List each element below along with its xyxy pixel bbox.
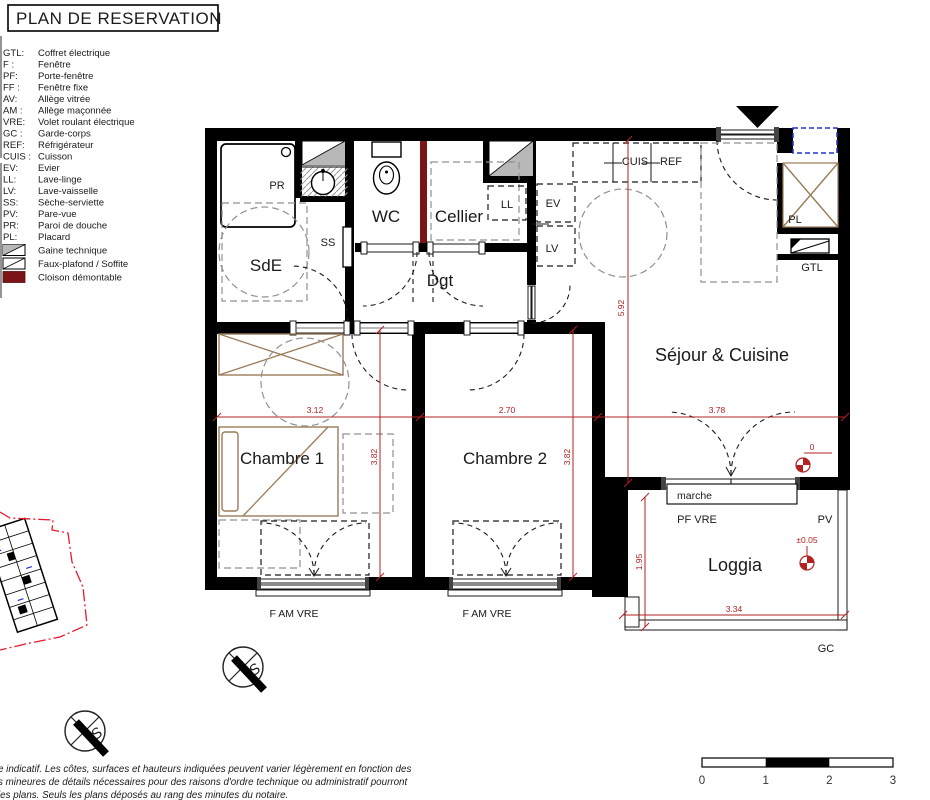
wardrobe bbox=[219, 334, 343, 375]
shower-drain bbox=[282, 148, 291, 157]
label-gc: GC bbox=[818, 643, 835, 655]
legend-abbr: AM : bbox=[3, 106, 23, 117]
label-cuis: CUIS bbox=[622, 156, 648, 168]
legend-label: Fenêtre bbox=[38, 60, 71, 71]
furniture-outline bbox=[219, 520, 300, 568]
legend-abbr: VRE: bbox=[3, 117, 25, 128]
wall-segment bbox=[592, 477, 628, 597]
scale-tick-2: 2 bbox=[826, 775, 832, 787]
legend-abbr: PV: bbox=[3, 209, 18, 220]
legend-label: Cloison démontable bbox=[38, 273, 122, 284]
faux-plafond-outline bbox=[701, 143, 777, 282]
scale-tick-0: 0 bbox=[699, 775, 705, 787]
door-hinge bbox=[716, 127, 721, 142]
label-ref: REF bbox=[660, 156, 682, 168]
scale-tick-3: 3 bbox=[890, 775, 896, 787]
door-hinge bbox=[774, 127, 779, 142]
legend-label: Sèche-serviette bbox=[38, 198, 104, 209]
room-label-chambre1: Chambre 1 bbox=[240, 449, 324, 468]
label-pl: PL bbox=[788, 214, 801, 226]
loggia-parapet-right bbox=[838, 490, 847, 630]
legend-label: Allège vitrée bbox=[38, 94, 90, 105]
legend-label: Réfrigérateur bbox=[38, 140, 93, 151]
towel-radiator bbox=[343, 227, 352, 267]
dim-loggia-width: 3.34 bbox=[726, 604, 743, 614]
compass-2: S bbox=[65, 711, 106, 754]
scale-bar: 0 1 2 3 bbox=[699, 758, 896, 787]
wall-segment bbox=[777, 254, 838, 260]
wall-segment bbox=[483, 176, 533, 183]
legend-label: Evier bbox=[38, 163, 60, 174]
dim-ch1-depth: 3.82 bbox=[369, 448, 379, 465]
label-f-am-vre-2: F AM VRE bbox=[462, 608, 511, 620]
label-lv: LV bbox=[546, 243, 559, 255]
disclaimer-line-1: e indicatif. Les côtes, surfaces et haut… bbox=[0, 764, 411, 775]
legend-abbr: EV: bbox=[3, 163, 18, 174]
level-zero-label: 0 bbox=[810, 442, 815, 452]
label-pr: PR bbox=[269, 180, 284, 192]
level-loggia-label: ±0.05 bbox=[796, 535, 817, 545]
wall-segment bbox=[777, 163, 783, 228]
gtl-coffret bbox=[783, 234, 838, 254]
room-label-cellier: Cellier bbox=[435, 207, 484, 226]
legend-label: Coffret électrique bbox=[38, 48, 110, 59]
pf-vre-door bbox=[661, 412, 800, 490]
wc-door bbox=[361, 242, 419, 306]
wall-segment bbox=[838, 128, 850, 490]
entrance-door-arc bbox=[717, 140, 777, 200]
wall-segment bbox=[412, 322, 425, 590]
entrance-arrow-icon bbox=[736, 106, 779, 128]
wall-segment bbox=[483, 243, 534, 252]
disclaimer: e indicatif. Les côtes, surfaces et haut… bbox=[0, 764, 411, 800]
label-f-am-vre-1: F AM VRE bbox=[269, 608, 318, 620]
legend-abbr: F : bbox=[3, 60, 14, 71]
wall-segment bbox=[205, 128, 217, 590]
marche-label: marche bbox=[677, 490, 712, 502]
label-gtl: GTL bbox=[801, 262, 822, 274]
loggia-parapet-bottom bbox=[625, 620, 847, 630]
entrance-door bbox=[716, 127, 779, 200]
room-label-wc: WC bbox=[372, 207, 400, 226]
legend-label: Faux-plafond / Soffite bbox=[38, 259, 128, 270]
legend-label: Paroi de douche bbox=[38, 221, 107, 232]
wall-segment bbox=[527, 320, 536, 334]
site-plan-building bbox=[0, 518, 57, 632]
level-marker-loggia: ±0.05 bbox=[796, 535, 817, 570]
legend-label: Fenêtre fixe bbox=[38, 83, 88, 94]
legend-label: Pare-vue bbox=[38, 209, 77, 220]
legend-label: Gaine technique bbox=[38, 246, 107, 257]
dim-loggia-depth: 1.95 bbox=[634, 553, 644, 570]
legend-label: Cuisson bbox=[38, 152, 72, 163]
cloison-demontable-wall bbox=[420, 141, 427, 243]
dim-sejour-width: 3.78 bbox=[709, 405, 726, 415]
disclaimer-line-3: les plans. Seuls les plans déposés au ra… bbox=[0, 790, 288, 800]
label-ss: SS bbox=[321, 237, 336, 249]
dim-ch2-depth: 3.82 bbox=[562, 448, 572, 465]
dining-table-outline bbox=[579, 189, 667, 277]
legend-label: Volet roulant électrique bbox=[38, 117, 135, 128]
scale-tick-1: 1 bbox=[762, 775, 768, 787]
chambre2-window bbox=[448, 521, 562, 596]
legend-label: Garde-corps bbox=[38, 129, 91, 140]
room-label-sejour: Séjour & Cuisine bbox=[655, 345, 789, 365]
label-ev: EV bbox=[546, 198, 561, 210]
legend-abbr: REF: bbox=[3, 140, 25, 151]
site-plan bbox=[0, 512, 87, 650]
label-pf-vre: PF VRE bbox=[677, 514, 717, 526]
vent-shaft bbox=[793, 128, 837, 153]
clearance-circle bbox=[261, 338, 349, 426]
furniture-outline bbox=[343, 434, 393, 513]
dim-ch2-width: 2.70 bbox=[499, 405, 516, 415]
legend-label: Lave-linge bbox=[38, 175, 82, 186]
label-pv: PV bbox=[818, 514, 833, 526]
legend-abbr: PF: bbox=[3, 71, 18, 82]
dim-ch1-width: 3.12 bbox=[307, 405, 324, 415]
room-label-loggia: Loggia bbox=[708, 555, 763, 575]
legend-abbr: GC : bbox=[3, 129, 23, 140]
legend: GTL:Coffret électrique F :Fenêtre PF:Por… bbox=[3, 48, 135, 284]
legend-label: Lave-vaisselle bbox=[38, 186, 98, 197]
legend-label: Placard bbox=[38, 232, 70, 243]
disclaimer-line-2: s mineures de détails nécessaires pour d… bbox=[0, 777, 408, 788]
dgt-sejour-door bbox=[527, 285, 570, 323]
legend-swatch-cloison-demontable: Cloison démontable bbox=[3, 272, 122, 284]
washbasin bbox=[300, 167, 348, 197]
legend-swatch-gaine-technique: Gaine technique bbox=[3, 245, 107, 257]
legend-abbr: PL: bbox=[3, 232, 17, 243]
legend-abbr: FF : bbox=[3, 83, 20, 94]
dim-sejour-depth: 5.92 bbox=[616, 299, 626, 316]
legend-abbr: AV: bbox=[3, 94, 17, 105]
page-title: PLAN DE RESERVATION bbox=[16, 9, 222, 28]
legend-abbr: SS: bbox=[3, 198, 18, 209]
room-label-chambre2: Chambre 2 bbox=[463, 449, 547, 468]
bed bbox=[219, 427, 338, 516]
legend-swatch-faux-plafond: Faux-plafond / Soffite bbox=[3, 258, 128, 270]
wall-segment bbox=[777, 227, 838, 234]
chambre1-door bbox=[352, 321, 414, 390]
legend-label: Porte-fenêtre bbox=[38, 71, 93, 82]
marche-step: marche bbox=[667, 484, 797, 504]
title-block: PLAN DE RESERVATION bbox=[8, 5, 222, 31]
room-label-dgt: Dgt bbox=[427, 271, 454, 290]
gaine-technique-sde bbox=[302, 141, 345, 165]
legend-abbr: LL: bbox=[3, 175, 16, 186]
chambre1-window bbox=[256, 521, 370, 596]
scale-bar-filled-segment bbox=[766, 758, 830, 767]
chambre2-door bbox=[464, 321, 524, 390]
loggia-parapet-return bbox=[625, 597, 639, 627]
compass-1: S bbox=[223, 647, 264, 690]
legend-abbr: GTL: bbox=[3, 48, 24, 59]
level-marker-zero: 0 bbox=[796, 442, 832, 472]
legend-abbr: CUIS : bbox=[3, 152, 31, 163]
gaine-technique-cellier bbox=[489, 141, 533, 176]
legend-abbr: LV: bbox=[3, 186, 16, 197]
room-label-sde: SdE bbox=[250, 256, 282, 275]
legend-abbr: PR: bbox=[3, 221, 19, 232]
legend-label: Allège maçonnée bbox=[38, 106, 111, 117]
label-ll: LL bbox=[501, 199, 513, 211]
floor-plan-canvas: PLAN DE RESERVATION GTL:Coffret électriq… bbox=[0, 0, 930, 800]
toilet bbox=[372, 142, 401, 194]
